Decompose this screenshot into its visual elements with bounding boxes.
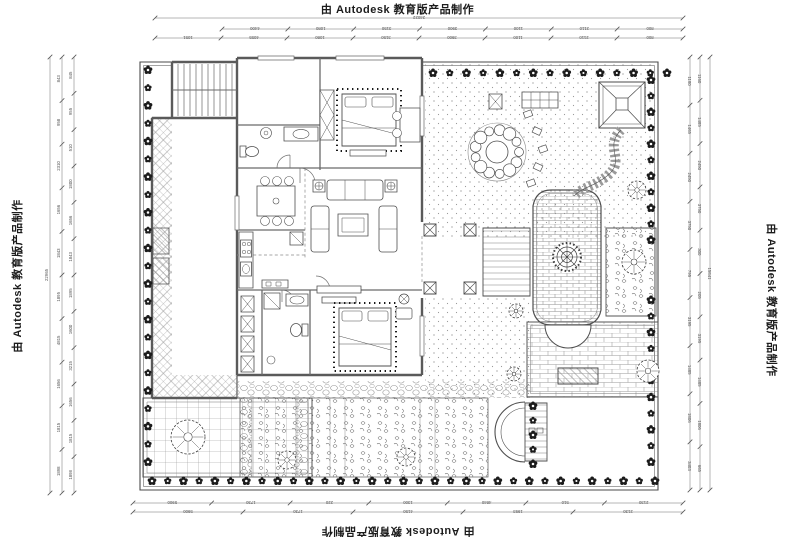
tree-icon: [397, 448, 415, 466]
flower-icon: [321, 477, 328, 484]
dim-label: 3750: [687, 221, 692, 231]
fridge: [290, 232, 303, 245]
flower-icon: [179, 477, 188, 485]
dim-label: 1895: [56, 291, 61, 301]
flower-icon: [148, 477, 157, 485]
dim-label: 1730: [293, 509, 303, 514]
dimension-chain: 440010803150390011002110800: [220, 26, 686, 31]
side-table: [385, 180, 397, 192]
dim-label: 2450: [697, 160, 702, 170]
plaza-medallion: [553, 243, 581, 271]
sink: [290, 296, 304, 304]
dimension-chain: 1160148524503750300205319514851806665: [697, 55, 702, 493]
dim-label: 510: [68, 144, 73, 152]
bed-bench: [350, 150, 386, 156]
dim-label: 800: [646, 35, 654, 40]
dim-label: 800: [646, 26, 654, 31]
dim-label: 1300: [403, 500, 413, 505]
dimension-chain: 84395823101656184318954815165618151898: [56, 55, 64, 496]
flower-icon: [541, 477, 548, 484]
tree-icon: [637, 360, 659, 382]
dim-label: 3403: [687, 461, 692, 471]
side-table: [313, 180, 325, 192]
dim-label: 843: [56, 75, 61, 83]
flower-icon: [647, 442, 654, 449]
flower-icon: [416, 477, 423, 484]
cooktop: [241, 240, 252, 257]
toilet: [291, 324, 309, 337]
tree-icon: [171, 420, 205, 454]
dim-label: 1656: [56, 379, 61, 389]
tree-icon: [622, 250, 646, 274]
flower-icon: [144, 227, 151, 234]
kitchen-sink: [241, 262, 252, 276]
planter-box: [153, 228, 169, 254]
dimension-chain: 22965: [44, 55, 52, 496]
dim-label: 4055: [249, 35, 259, 40]
dim-label: 22965: [44, 268, 49, 281]
dim-label: 1815: [56, 422, 61, 432]
flower-icon: [144, 66, 153, 74]
dim-label: 845: [68, 71, 73, 79]
dim-label: 2450: [687, 172, 692, 182]
dim-label: 510: [561, 500, 569, 505]
flower-icon: [368, 477, 377, 485]
dim-label: 3900: [447, 35, 457, 40]
flower-icon: [353, 477, 360, 484]
dimension-chain: 24022: [153, 15, 686, 20]
dim-label: 1080: [315, 35, 325, 40]
sofa-back: [327, 180, 383, 200]
house: [152, 56, 424, 398]
dim-label: 4400: [250, 26, 260, 31]
garden-bench: [558, 368, 598, 384]
dim-label: 1180: [687, 76, 692, 86]
central-plaza: [533, 190, 601, 348]
flower-icon: [144, 84, 151, 91]
flower-icon: [647, 425, 656, 433]
dimension-chain: 1051405510803150390011002110800: [153, 35, 686, 40]
dining-room: [257, 177, 295, 226]
dim-label: 1160: [697, 74, 702, 84]
dim-label: 1815: [68, 433, 73, 443]
dimension-chain: 8459555101800165618431895160032151656181…: [68, 55, 76, 496]
dim-label: 3195: [697, 334, 702, 344]
flower-icon: [258, 477, 265, 484]
entry-steps: [483, 228, 530, 296]
dim-label: 1898: [68, 469, 73, 479]
flower-icon: [144, 120, 151, 127]
dimension-chain: 59001730220130048405102130: [131, 500, 686, 505]
dim-label: 2310: [56, 161, 61, 171]
flower-icon: [663, 69, 672, 77]
flower-icon: [242, 477, 251, 485]
flower-icon: [290, 477, 297, 484]
dimension-chain: 59001730415019932130: [131, 509, 686, 514]
dim-label: 1843: [56, 248, 61, 258]
dim-label: 1051: [183, 35, 193, 40]
flower-icon: [478, 477, 485, 484]
dim-label: 1800: [68, 179, 73, 189]
toilet: [240, 146, 259, 157]
flower-icon: [573, 477, 580, 484]
dim-label: 1600: [68, 324, 73, 334]
dim-label: 1898: [56, 466, 61, 476]
flower-icon: [556, 477, 565, 485]
dim-label: 1656: [56, 204, 61, 214]
flower-icon: [336, 477, 345, 485]
tree-icon: [628, 181, 646, 199]
lower-counter: [262, 280, 288, 288]
dim-label: 5900: [183, 509, 193, 514]
flower-icon: [399, 477, 408, 485]
flower-icon: [144, 334, 151, 341]
flower-icon: [431, 477, 440, 485]
flower-icon: [227, 477, 234, 484]
flower-icon: [144, 262, 151, 269]
dim-label: 1730: [245, 500, 255, 505]
flower-icon: [144, 298, 151, 305]
stone-circle: [468, 123, 526, 181]
garden-table: [489, 92, 558, 109]
dim-label: 1656: [68, 215, 73, 225]
dim-label: 3150: [381, 35, 391, 40]
dim-label: 4840: [481, 500, 491, 505]
dim-label: 1485: [697, 117, 702, 127]
dim-label: 3900: [447, 26, 457, 31]
dim-label: 1080: [315, 26, 325, 31]
wardrobe: [320, 90, 334, 140]
flower-icon: [619, 477, 628, 485]
pebble-path-band: [237, 381, 530, 398]
flower-icon: [647, 458, 656, 466]
flower-icon: [196, 477, 203, 484]
flower-icon: [144, 369, 151, 376]
vegetable-garden: [240, 398, 488, 477]
flower-icon: [604, 477, 611, 484]
tree-icon: [509, 304, 523, 318]
dim-label: 665: [697, 465, 702, 473]
flower-icon: [510, 477, 517, 484]
flower-icon: [273, 477, 282, 485]
dim-label: 1465: [687, 124, 692, 134]
dim-label: 1843: [68, 251, 73, 261]
semicircular-pool: [495, 402, 547, 462]
dim-label: 1100: [513, 35, 523, 40]
dim-label: 3195: [687, 317, 692, 327]
flower-icon: [384, 477, 391, 484]
dim-label: 1806: [697, 420, 702, 430]
dim-label: 1895: [68, 288, 73, 298]
flower-icon: [462, 477, 471, 485]
dim-label: 958: [56, 118, 61, 126]
dimension-chain: 15841: [707, 55, 712, 493]
flower-icon: [164, 477, 171, 484]
dim-label: 300: [697, 248, 702, 256]
flower-icon: [305, 477, 314, 485]
sink: [293, 129, 309, 138]
dim-label: 4150: [403, 509, 413, 514]
dim-label: 795: [687, 270, 692, 278]
dim-label: 5900: [167, 500, 177, 505]
planter-box: [153, 258, 169, 284]
flower-icon: [211, 477, 220, 485]
dim-label: 3750: [697, 204, 702, 214]
dim-label: 3215: [68, 360, 73, 370]
flower-icon: [493, 477, 502, 485]
dim-label: 1100: [513, 26, 523, 31]
dim-label: 1485: [687, 365, 692, 375]
dim-label: 2110: [579, 35, 589, 40]
dim-label: 1485: [697, 377, 702, 387]
flower-icon: [636, 477, 643, 484]
flower-icon: [588, 477, 597, 485]
dim-label: 220: [325, 500, 333, 505]
floor-plan-drawing: 2402244001080315039001100211080010514055…: [0, 0, 795, 537]
flower-icon: [144, 101, 153, 109]
flower-icon: [447, 477, 454, 484]
dim-label: 2130: [638, 500, 648, 505]
dim-label: 1806: [687, 413, 692, 423]
tree-icon: [278, 451, 296, 469]
dim-label: 2130: [623, 509, 633, 514]
dim-label: 1993: [513, 509, 523, 514]
dim-label: 1656: [68, 397, 73, 407]
dim-label: 955: [68, 107, 73, 115]
garden-pavilion: [599, 82, 645, 128]
cad-floor-plan-sheet: 由 Autodesk 教育版产品制作 由 Autodesk 教育版产品制作 由 …: [0, 0, 795, 537]
dim-label: 24022: [412, 15, 425, 20]
flower-icon: [144, 191, 151, 198]
flower-icon: [144, 155, 151, 162]
dim-label: 15841: [707, 268, 712, 281]
dim-label: 2110: [579, 26, 589, 31]
dim-label: 4815: [56, 335, 61, 345]
tree-icon: [507, 367, 521, 381]
flower-icon: [647, 410, 654, 417]
flower-icon: [525, 477, 534, 485]
dimension-chain: 11801465245037507953195148518063403: [687, 55, 692, 493]
dim-label: 3150: [381, 26, 391, 31]
floor-drain: [267, 356, 275, 364]
dim-label: 205: [697, 292, 702, 300]
